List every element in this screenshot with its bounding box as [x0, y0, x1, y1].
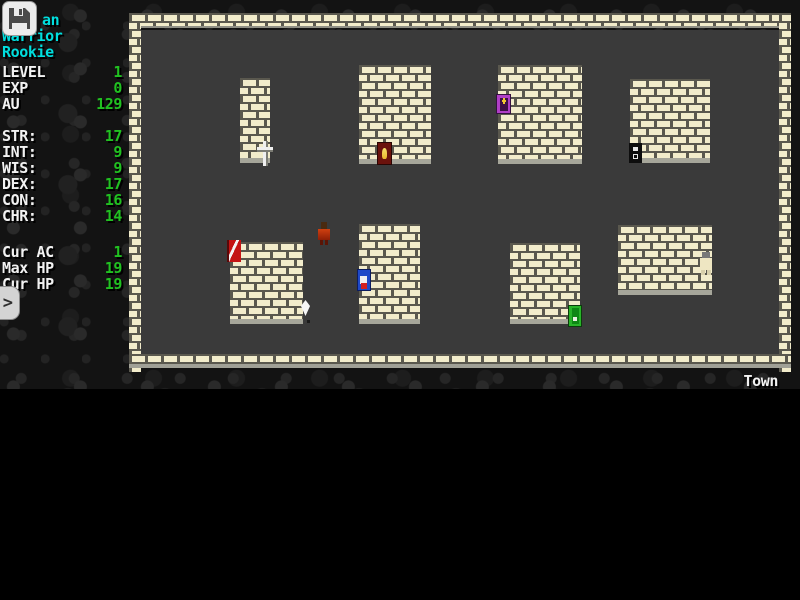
- stat-row-exp: EXP0: [0, 80, 129, 96]
- magic-door-icon[interactable]: [496, 94, 511, 114]
- max-hp-label: Max HP: [2, 260, 54, 276]
- stat-row-maxhp: Max HP19: [0, 260, 129, 276]
- town-wall-right: [779, 13, 791, 372]
- building-inn: [359, 65, 431, 164]
- character-panel: an Warrior Rookie LEVEL1 EXP0 AU129 STR:…: [0, 0, 129, 389]
- exp-label: EXP: [2, 80, 28, 96]
- stat-row-str: STR:17: [0, 128, 129, 144]
- green-door-icon[interactable]: [568, 305, 582, 327]
- command-prompt-tab[interactable]: >: [0, 286, 20, 320]
- stat-row-wis: WIS:9: [0, 160, 129, 176]
- chr-value: 14: [105, 208, 122, 224]
- red-banner-icon[interactable]: [227, 240, 241, 262]
- wis-label: WIS:: [2, 160, 37, 176]
- floppy-disk-icon: [9, 8, 30, 29]
- blue-knight-sprite[interactable]: [357, 269, 371, 291]
- building-dark-shop: [630, 79, 710, 163]
- character-race-fragment: an: [42, 12, 59, 28]
- temple-cross-icon[interactable]: [257, 141, 273, 166]
- str-label: STR:: [2, 128, 37, 144]
- stat-row-ac: Cur AC1: [0, 244, 129, 260]
- gold-value: 129: [96, 96, 122, 112]
- str-value: 17: [105, 128, 122, 144]
- cur-hp-value: 19: [105, 276, 122, 292]
- sword-item-icon[interactable]: [299, 300, 312, 323]
- progress-stats: LEVEL1 EXP0 AU129: [0, 64, 129, 112]
- con-label: CON:: [2, 192, 37, 208]
- stat-row-curhp: Cur HP19: [0, 276, 129, 292]
- game-screen: Town an Warrior Rookie LEVEL1 EXP0 AU129…: [0, 0, 800, 600]
- red-figure-sprite[interactable]: [317, 222, 331, 245]
- max-hp-value: 19: [105, 260, 122, 276]
- letterbox-bottom: [0, 389, 800, 600]
- level-label: LEVEL: [2, 64, 45, 80]
- chr-label: CHR:: [2, 208, 37, 224]
- dex-value: 17: [105, 176, 122, 192]
- location-label: Town: [700, 372, 778, 390]
- town-wall-bottom: [129, 354, 791, 368]
- vital-stats: Cur AC1 Max HP19 Cur HP19: [0, 244, 129, 292]
- gold-label: AU: [2, 96, 19, 112]
- stat-row-gold: AU129: [0, 96, 129, 112]
- save-button[interactable]: [2, 1, 37, 36]
- character-rank: Rookie: [2, 44, 54, 60]
- stat-row-int: INT:9: [0, 144, 129, 160]
- building-magic-shop: [498, 65, 582, 164]
- level-value: 1: [113, 64, 122, 80]
- con-value: 16: [105, 192, 122, 208]
- prompt-chevron-icon: >: [3, 293, 13, 313]
- stat-row-level: LEVEL1: [0, 64, 129, 80]
- torch-door-icon[interactable]: [377, 142, 392, 165]
- stat-row-con: CON:16: [0, 192, 129, 208]
- exp-value: 0: [113, 80, 122, 96]
- cur-ac-label: Cur AC: [2, 244, 54, 260]
- black-door-icon[interactable]: [629, 143, 642, 163]
- stat-row-dex: DEX:17: [0, 176, 129, 192]
- town-wall-left: [129, 13, 141, 372]
- town-wall-top: [129, 13, 791, 28]
- attribute-stats: STR:17 INT:9 WIS:9 DEX:17 CON:16 CHR:14: [0, 128, 129, 224]
- pale-figure-sprite[interactable]: [699, 252, 713, 275]
- int-label: INT:: [2, 144, 37, 160]
- wis-value: 9: [113, 160, 122, 176]
- stat-row-chr: CHR:14: [0, 208, 129, 224]
- building-hall: [618, 225, 712, 295]
- cur-ac-value: 1: [113, 244, 122, 260]
- int-value: 9: [113, 144, 122, 160]
- dex-label: DEX:: [2, 176, 37, 192]
